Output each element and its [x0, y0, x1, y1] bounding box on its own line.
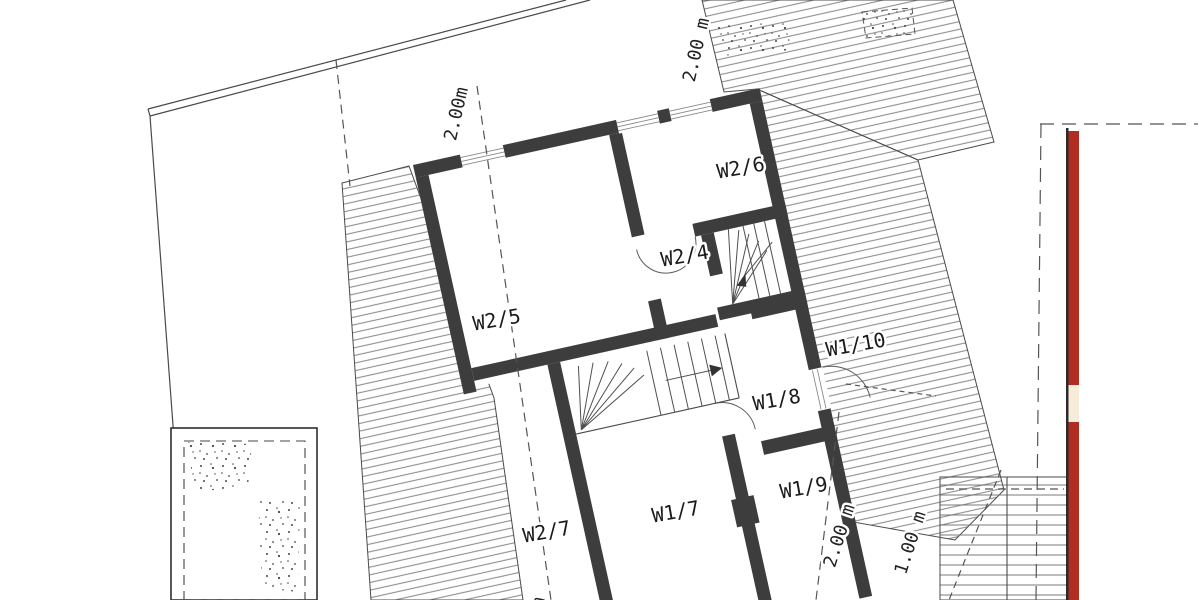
garden-bed — [171, 428, 317, 600]
deck-terrace — [940, 477, 1067, 600]
floor-plan-page: W2/5 W2/6 W2/4 W2/7 W1/7 W1/8 W1/9 W1/10… — [0, 0, 1200, 600]
roof-stipple-patch — [718, 22, 790, 56]
floor-plan-drawing: W2/5 W2/6 W2/4 W2/7 W1/7 W1/8 W1/9 W1/10… — [0, 0, 1200, 600]
roof-stipple-patch — [862, 8, 915, 38]
red-marker-notch — [1069, 385, 1080, 422]
red-marker-edge — [1066, 128, 1069, 600]
garden-stipple — [258, 498, 300, 592]
red-elevation-marker — [1066, 128, 1079, 600]
garden-stipple — [186, 442, 252, 492]
